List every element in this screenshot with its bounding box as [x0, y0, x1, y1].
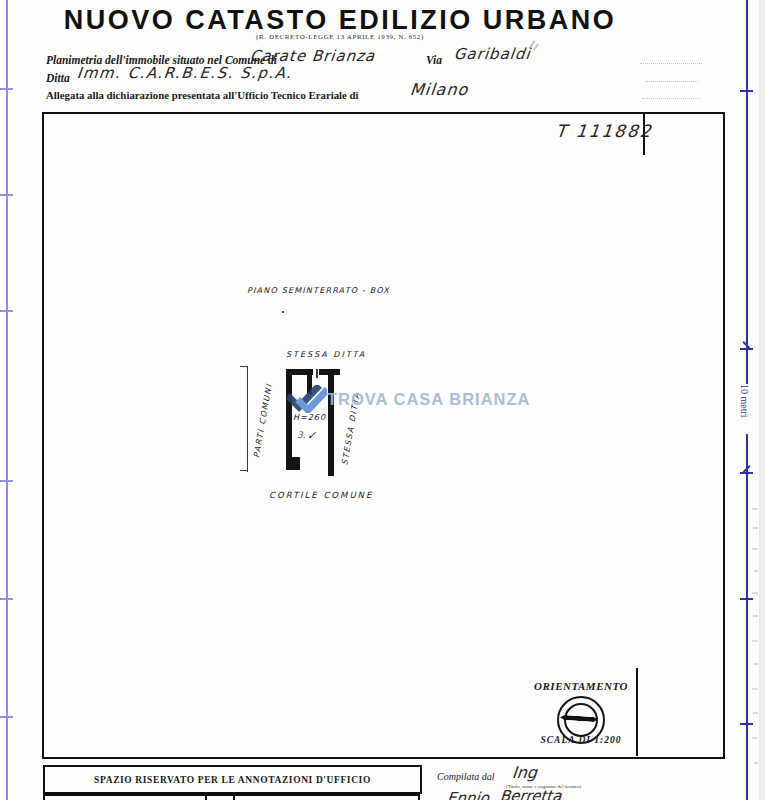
- doc-number: T 111882: [555, 121, 654, 141]
- trova-casa-brianza-logo-icon: [287, 385, 327, 413]
- bleed-mark: [752, 640, 758, 642]
- document-title: NUOVO CATASTO EDILIZIO URBANO: [30, 5, 650, 36]
- footer-cell-divider: [205, 794, 207, 800]
- wall-right: [328, 369, 334, 476]
- ditta-field-label: Ditta: [46, 72, 70, 84]
- bleed-mark: [754, 663, 758, 665]
- ruler-tick: [740, 723, 753, 725]
- dotted-rule: [642, 98, 700, 99]
- ruler-tick: [0, 716, 13, 718]
- room-height-label: H=260: [293, 413, 326, 422]
- annotations-box: SPAZIO RISERVATO PER LE ANNOTAZIONI D'UF…: [43, 765, 422, 794]
- footer-row-line: [43, 794, 420, 796]
- room-number-label: 3.: [297, 430, 306, 440]
- boundary-line: [247, 367, 248, 472]
- boundary-hook: [240, 366, 248, 367]
- compiled-by-label: Compilata dal: [437, 771, 495, 782]
- annotations-title: SPAZIO RISERVATO PER LE ANNOTAZIONI D'UF…: [94, 775, 371, 785]
- ruler-tick: [0, 88, 13, 90]
- wall-foot-block: [286, 457, 300, 470]
- bleed-mark: [754, 762, 758, 764]
- bleed-mark: [753, 712, 758, 714]
- ruler-arrow-tick: [740, 348, 753, 350]
- bleed-mark: [753, 615, 758, 617]
- ruler-arrow-tick: [740, 472, 753, 474]
- ruler-tick: [0, 310, 13, 312]
- bleed-mark: [752, 508, 758, 510]
- comune-field-value: Carate Brianza: [249, 47, 376, 65]
- via-field-value: Garibaldi: [453, 45, 532, 63]
- cadastral-document-page: 10 metri NUOVO CATASTO EDILIZIO URBANO (…: [0, 0, 765, 800]
- compiled-by-title: Ing: [511, 763, 538, 782]
- ruler-tick: [0, 194, 13, 196]
- pen-mark: [533, 43, 539, 50]
- ditta-field-value: Imm. C.A.R.B.E.S. S.p.A.: [76, 64, 293, 82]
- ruler-tick: [0, 480, 13, 482]
- above-plan-label: STESSA DITTA: [286, 350, 366, 359]
- room-check-mark: ✓: [307, 429, 316, 442]
- scale-label: SCALA DI 1:200: [531, 735, 631, 745]
- plan-frame: [42, 112, 725, 759]
- ufficio-field-value: Milano: [409, 80, 469, 99]
- compiled-by-firstname: Ennio: [446, 789, 490, 800]
- floor-label: PIANO SEMINTERRATO - BOX: [247, 286, 390, 295]
- ruler-length-label: 10 metri: [739, 384, 750, 434]
- orientation-title: ORIENTAMENTO: [531, 680, 631, 692]
- footer-cell-divider: [43, 794, 45, 800]
- ruler-tick: [740, 598, 753, 600]
- bleed-mark: [754, 570, 758, 572]
- footer-cell-divider: [233, 794, 235, 800]
- scan-edge-strip: [759, 0, 765, 800]
- dotted-rule: [646, 81, 698, 82]
- dotted-rule: [640, 63, 702, 64]
- door-jamb: [316, 369, 318, 378]
- ink-dot: [282, 311, 284, 313]
- bleed-mark: [752, 548, 758, 550]
- bleed-mark: [752, 688, 758, 690]
- ruler-tick: [740, 90, 753, 92]
- ufficio-field-label: Allegata alla dichiarazione presentata a…: [46, 89, 359, 101]
- boundary-hook: [240, 470, 248, 471]
- compiled-by-lastname: Berretta: [499, 787, 562, 800]
- bleed-mark: [753, 527, 758, 529]
- via-field-label: Via: [426, 54, 442, 66]
- footer-cell-divider: [418, 794, 420, 800]
- watermark-text: TROVA CASA BRIANZA: [327, 390, 530, 409]
- decree-subtitle: (R. DECRETO-LEGGE 13 APRILE 1939, N. 652…: [30, 33, 650, 41]
- bleed-mark: [752, 737, 758, 739]
- bleed-mark: [752, 592, 758, 594]
- ruler-tick: [0, 598, 13, 600]
- below-plan-label: CORTILE COMUNE: [269, 490, 373, 500]
- left-ruler-line: [6, 0, 8, 800]
- orientation-box-border: [636, 668, 638, 756]
